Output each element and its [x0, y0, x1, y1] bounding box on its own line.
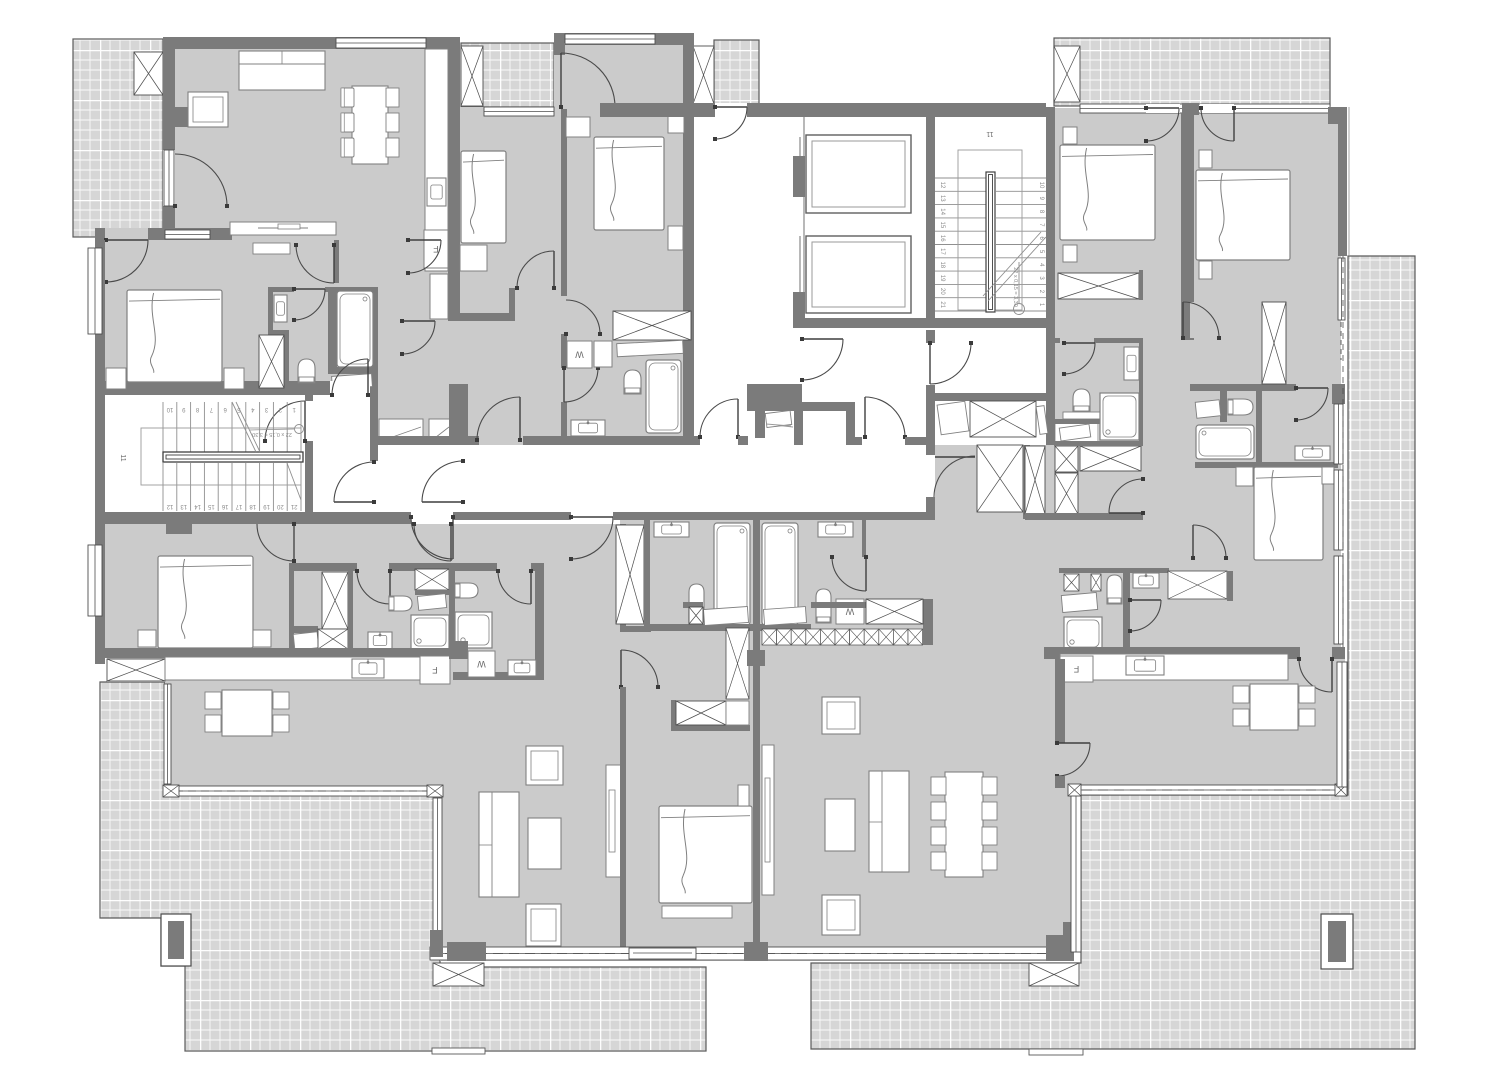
svg-text:21: 21: [939, 301, 945, 308]
svg-text:F: F: [1073, 664, 1079, 674]
svg-text:W: W: [477, 659, 486, 669]
svg-text:19: 19: [939, 275, 945, 282]
svg-text:17: 17: [235, 503, 242, 509]
svg-text:18: 18: [249, 503, 256, 509]
svg-text:12: 12: [166, 503, 173, 509]
svg-text:F: F: [433, 244, 439, 254]
svg-text:14: 14: [194, 503, 201, 509]
svg-text:13: 13: [939, 195, 945, 202]
svg-text:16: 16: [939, 235, 945, 242]
svg-text:12: 12: [939, 182, 945, 189]
svg-text:21: 21: [290, 503, 297, 509]
svg-text:22 x 0,15 = 3,30: 22 x 0,15 = 3,30: [252, 431, 292, 437]
svg-text:18: 18: [939, 261, 945, 268]
svg-text:F: F: [432, 665, 438, 675]
svg-text:17: 17: [939, 248, 945, 255]
svg-text:10: 10: [166, 406, 173, 412]
svg-text:19: 19: [263, 503, 270, 509]
svg-text:20: 20: [276, 503, 283, 509]
svg-text:11: 11: [119, 454, 126, 461]
svg-text:20: 20: [939, 288, 945, 295]
svg-text:15: 15: [207, 503, 214, 509]
svg-text:16: 16: [221, 503, 228, 509]
svg-text:11: 11: [986, 130, 993, 137]
svg-text:13: 13: [180, 503, 187, 509]
svg-text:14: 14: [939, 208, 945, 215]
svg-text:W: W: [575, 350, 584, 360]
svg-text:10: 10: [1038, 182, 1044, 189]
svg-text:22 x 0,15 = 3,30: 22 x 0,15 = 3,30: [1012, 267, 1018, 307]
svg-text:15: 15: [939, 222, 945, 229]
